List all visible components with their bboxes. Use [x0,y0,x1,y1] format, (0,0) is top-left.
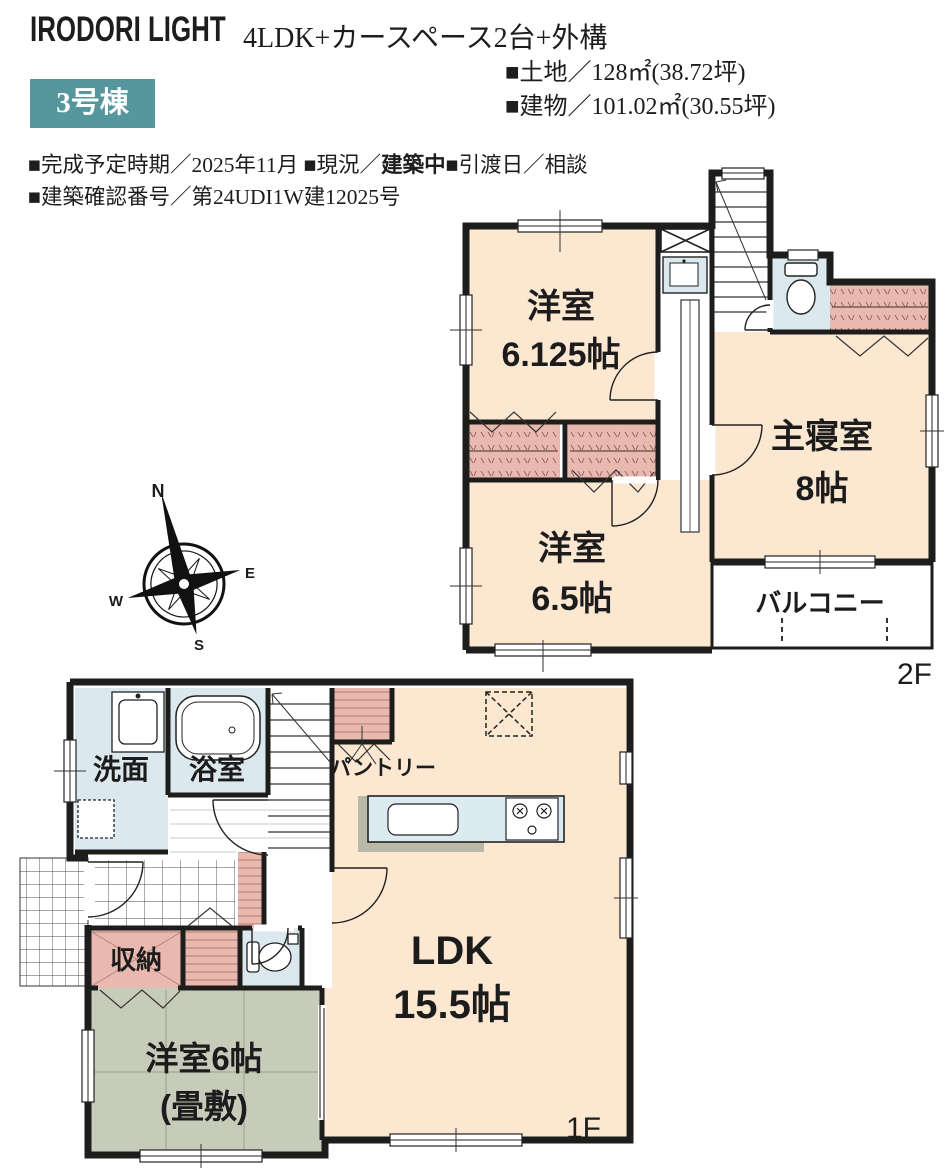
toilet-2f-icon [785,263,817,314]
label-room-south-2f: 洋室 [538,529,606,568]
label-bathroom: 浴室 [189,753,245,785]
floorplan-canvas: N E W S [0,0,950,1174]
label-pantry: パントリー [330,757,436,780]
label-room-west-2f: 洋室 [527,287,595,326]
washbasin-2f-icon [663,257,707,293]
floorplan-2f: 洋室 6.125帖 主寝室 8帖 洋室 6.5帖 バルコニー 2F [450,168,944,691]
label-balcony: バルコニー [755,588,884,618]
label-room-west-2f-size: 6.125帖 [501,336,620,374]
label-floor-2f: 2F [897,658,932,691]
label-washroom: 洗面 [93,754,149,785]
room-ldk [322,688,626,1138]
label-ldk: LDK [411,929,493,973]
label-room-south-2f-size: 6.5帖 [531,580,612,618]
svg-text:W: W [109,593,124,610]
label-floor-1f: 1F [566,1112,601,1145]
flyer-page: IRODORI LIGHT 4LDK+カースペース2台+外構 3号棟 ■土地／1… [0,0,950,1174]
stove-icon [506,798,558,840]
svg-text:N: N [152,481,165,501]
label-tatami: 洋室6帖 [145,1040,262,1077]
compass-icon: N E W S [105,478,255,654]
bathtub-icon [176,696,260,760]
label-master-2f: 主寝室 [771,417,873,456]
label-storage: 収納 [110,945,162,975]
svg-text:E: E [245,565,255,582]
label-master-2f-size: 8帖 [796,470,849,508]
label-ldk-size: 15.5帖 [393,983,511,1027]
svg-text:S: S [194,637,204,654]
label-tatami-sub: (畳敷) [160,1088,248,1125]
floorplan-1f: 洗面 浴室 パントリー LDK 15.5帖 収納 洋室6帖 (畳敷) 1F [20,682,638,1168]
stairs-1f [268,693,332,848]
